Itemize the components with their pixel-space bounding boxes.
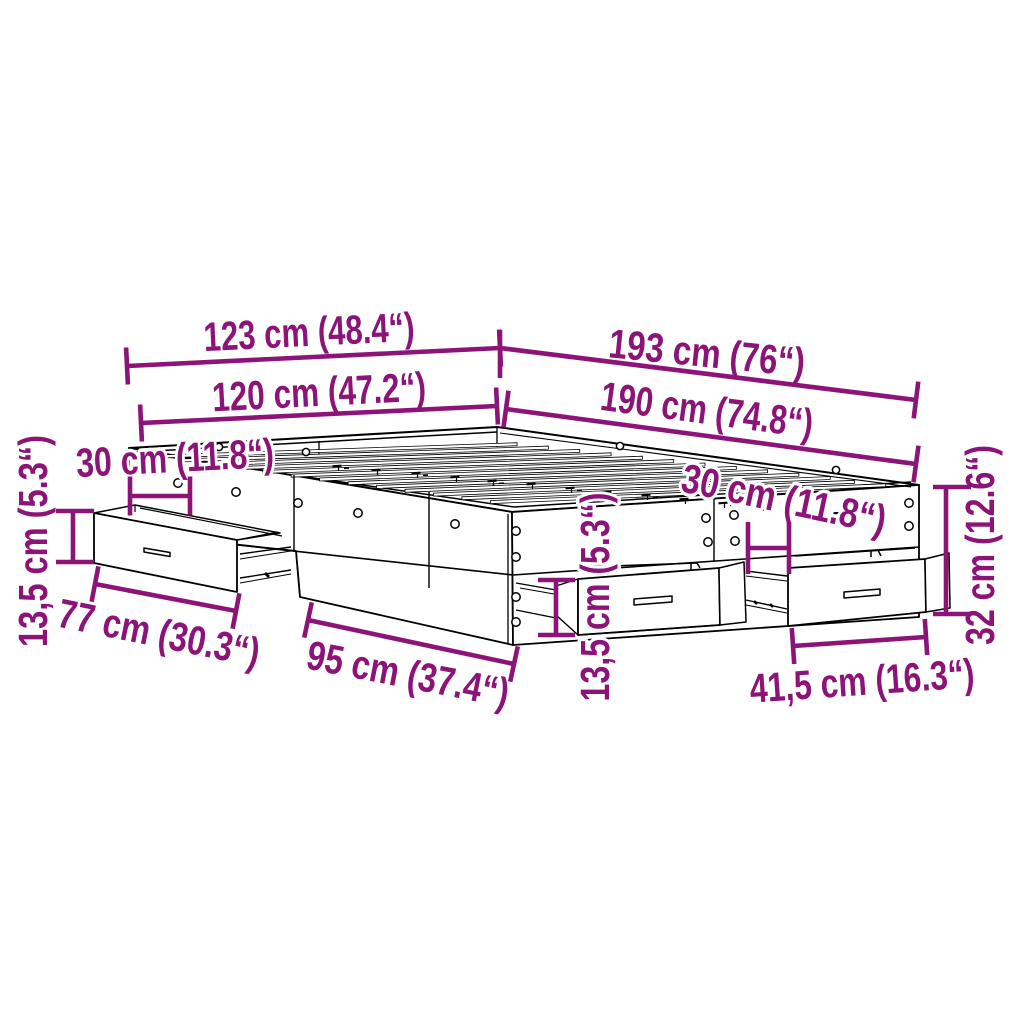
svg-text:13,5 cm (5.3“): 13,5 cm (5.3“) [10,435,56,647]
svg-text:13,5 cm (5.3“): 13,5 cm (5.3“) [572,493,618,702]
